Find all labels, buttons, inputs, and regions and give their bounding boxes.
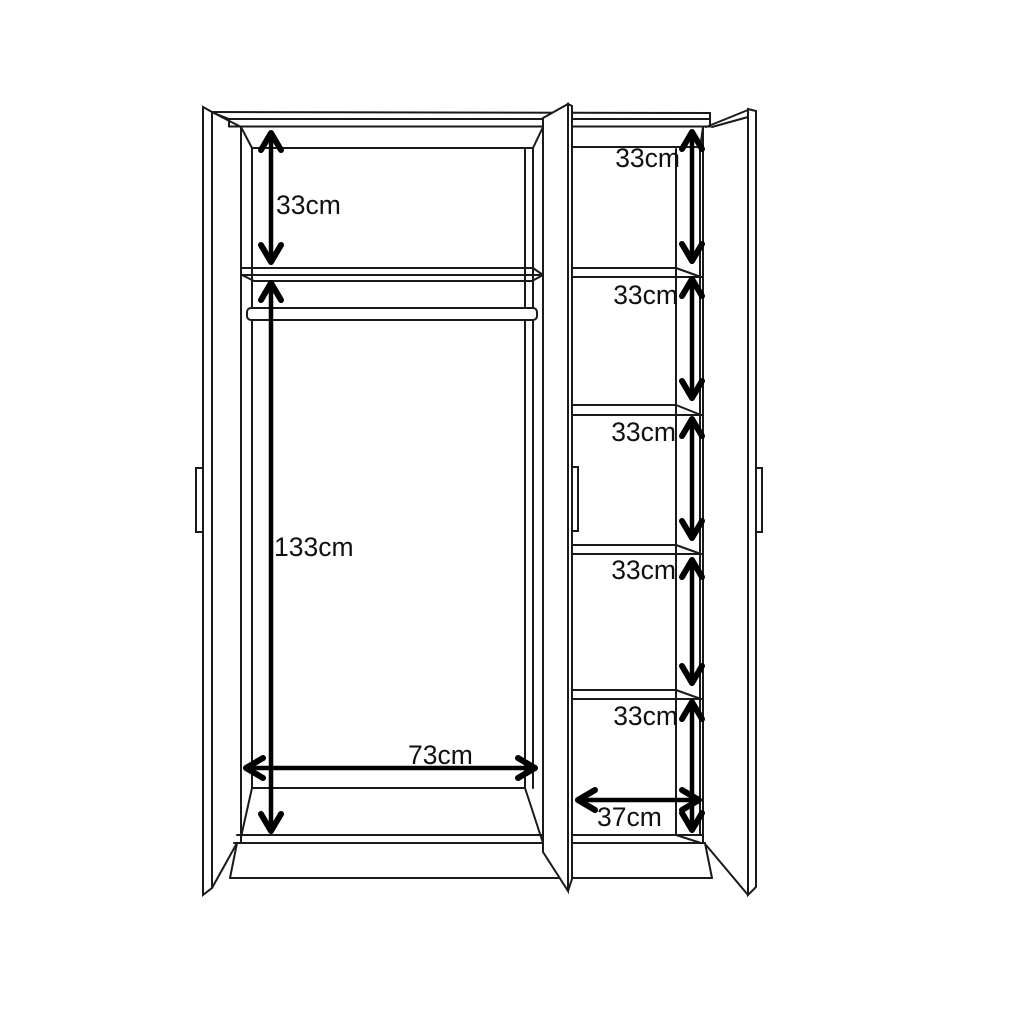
right-door-panel — [748, 109, 756, 895]
right-side-panel — [676, 127, 703, 843]
dim-left-width-label: 73cm — [408, 740, 473, 770]
dim-left-width-arrow — [246, 758, 535, 778]
hanging-rail — [247, 308, 537, 320]
right-door-handle[interactable] — [756, 468, 762, 532]
dim-right-shelf-3-label: 33cm — [611, 417, 676, 447]
left-side-panel — [241, 127, 252, 844]
dim-right-shelf-4-label: 33cm — [611, 555, 676, 585]
dim-right-width-label: 37cm — [597, 802, 662, 832]
dim-left-top-shelf-label: 33cm — [276, 190, 341, 220]
left-door[interactable] — [196, 107, 241, 895]
diagram-canvas: 33cm 133cm 73cm 33cm 33cm 33cm 33cm 33cm… — [0, 0, 1024, 1024]
left-door-panel — [203, 107, 212, 895]
wardrobe-dimension-diagram: 33cm 133cm 73cm 33cm 33cm 33cm 33cm 33cm… — [0, 0, 1024, 1024]
dim-right-shelf-2-label: 33cm — [613, 280, 678, 310]
right-door[interactable] — [706, 109, 762, 895]
middle-door[interactable] — [543, 104, 578, 891]
centre-divider — [525, 127, 543, 843]
base-plinth — [230, 835, 712, 878]
middle-door-face — [543, 104, 568, 891]
cornice — [213, 112, 711, 127]
dim-hanging-height-label: 133cm — [274, 532, 354, 562]
middle-door-handle[interactable] — [572, 467, 578, 531]
dim-right-shelf-1-label: 33cm — [615, 143, 680, 173]
dimension-labels: 33cm 133cm 73cm 33cm 33cm 33cm 33cm 33cm… — [274, 143, 680, 832]
left-top-shelf — [242, 268, 543, 281]
left-door-handle[interactable] — [196, 468, 203, 532]
dim-right-shelf-5-label: 33cm — [613, 701, 678, 731]
right-door-bottom-edge — [706, 845, 748, 895]
